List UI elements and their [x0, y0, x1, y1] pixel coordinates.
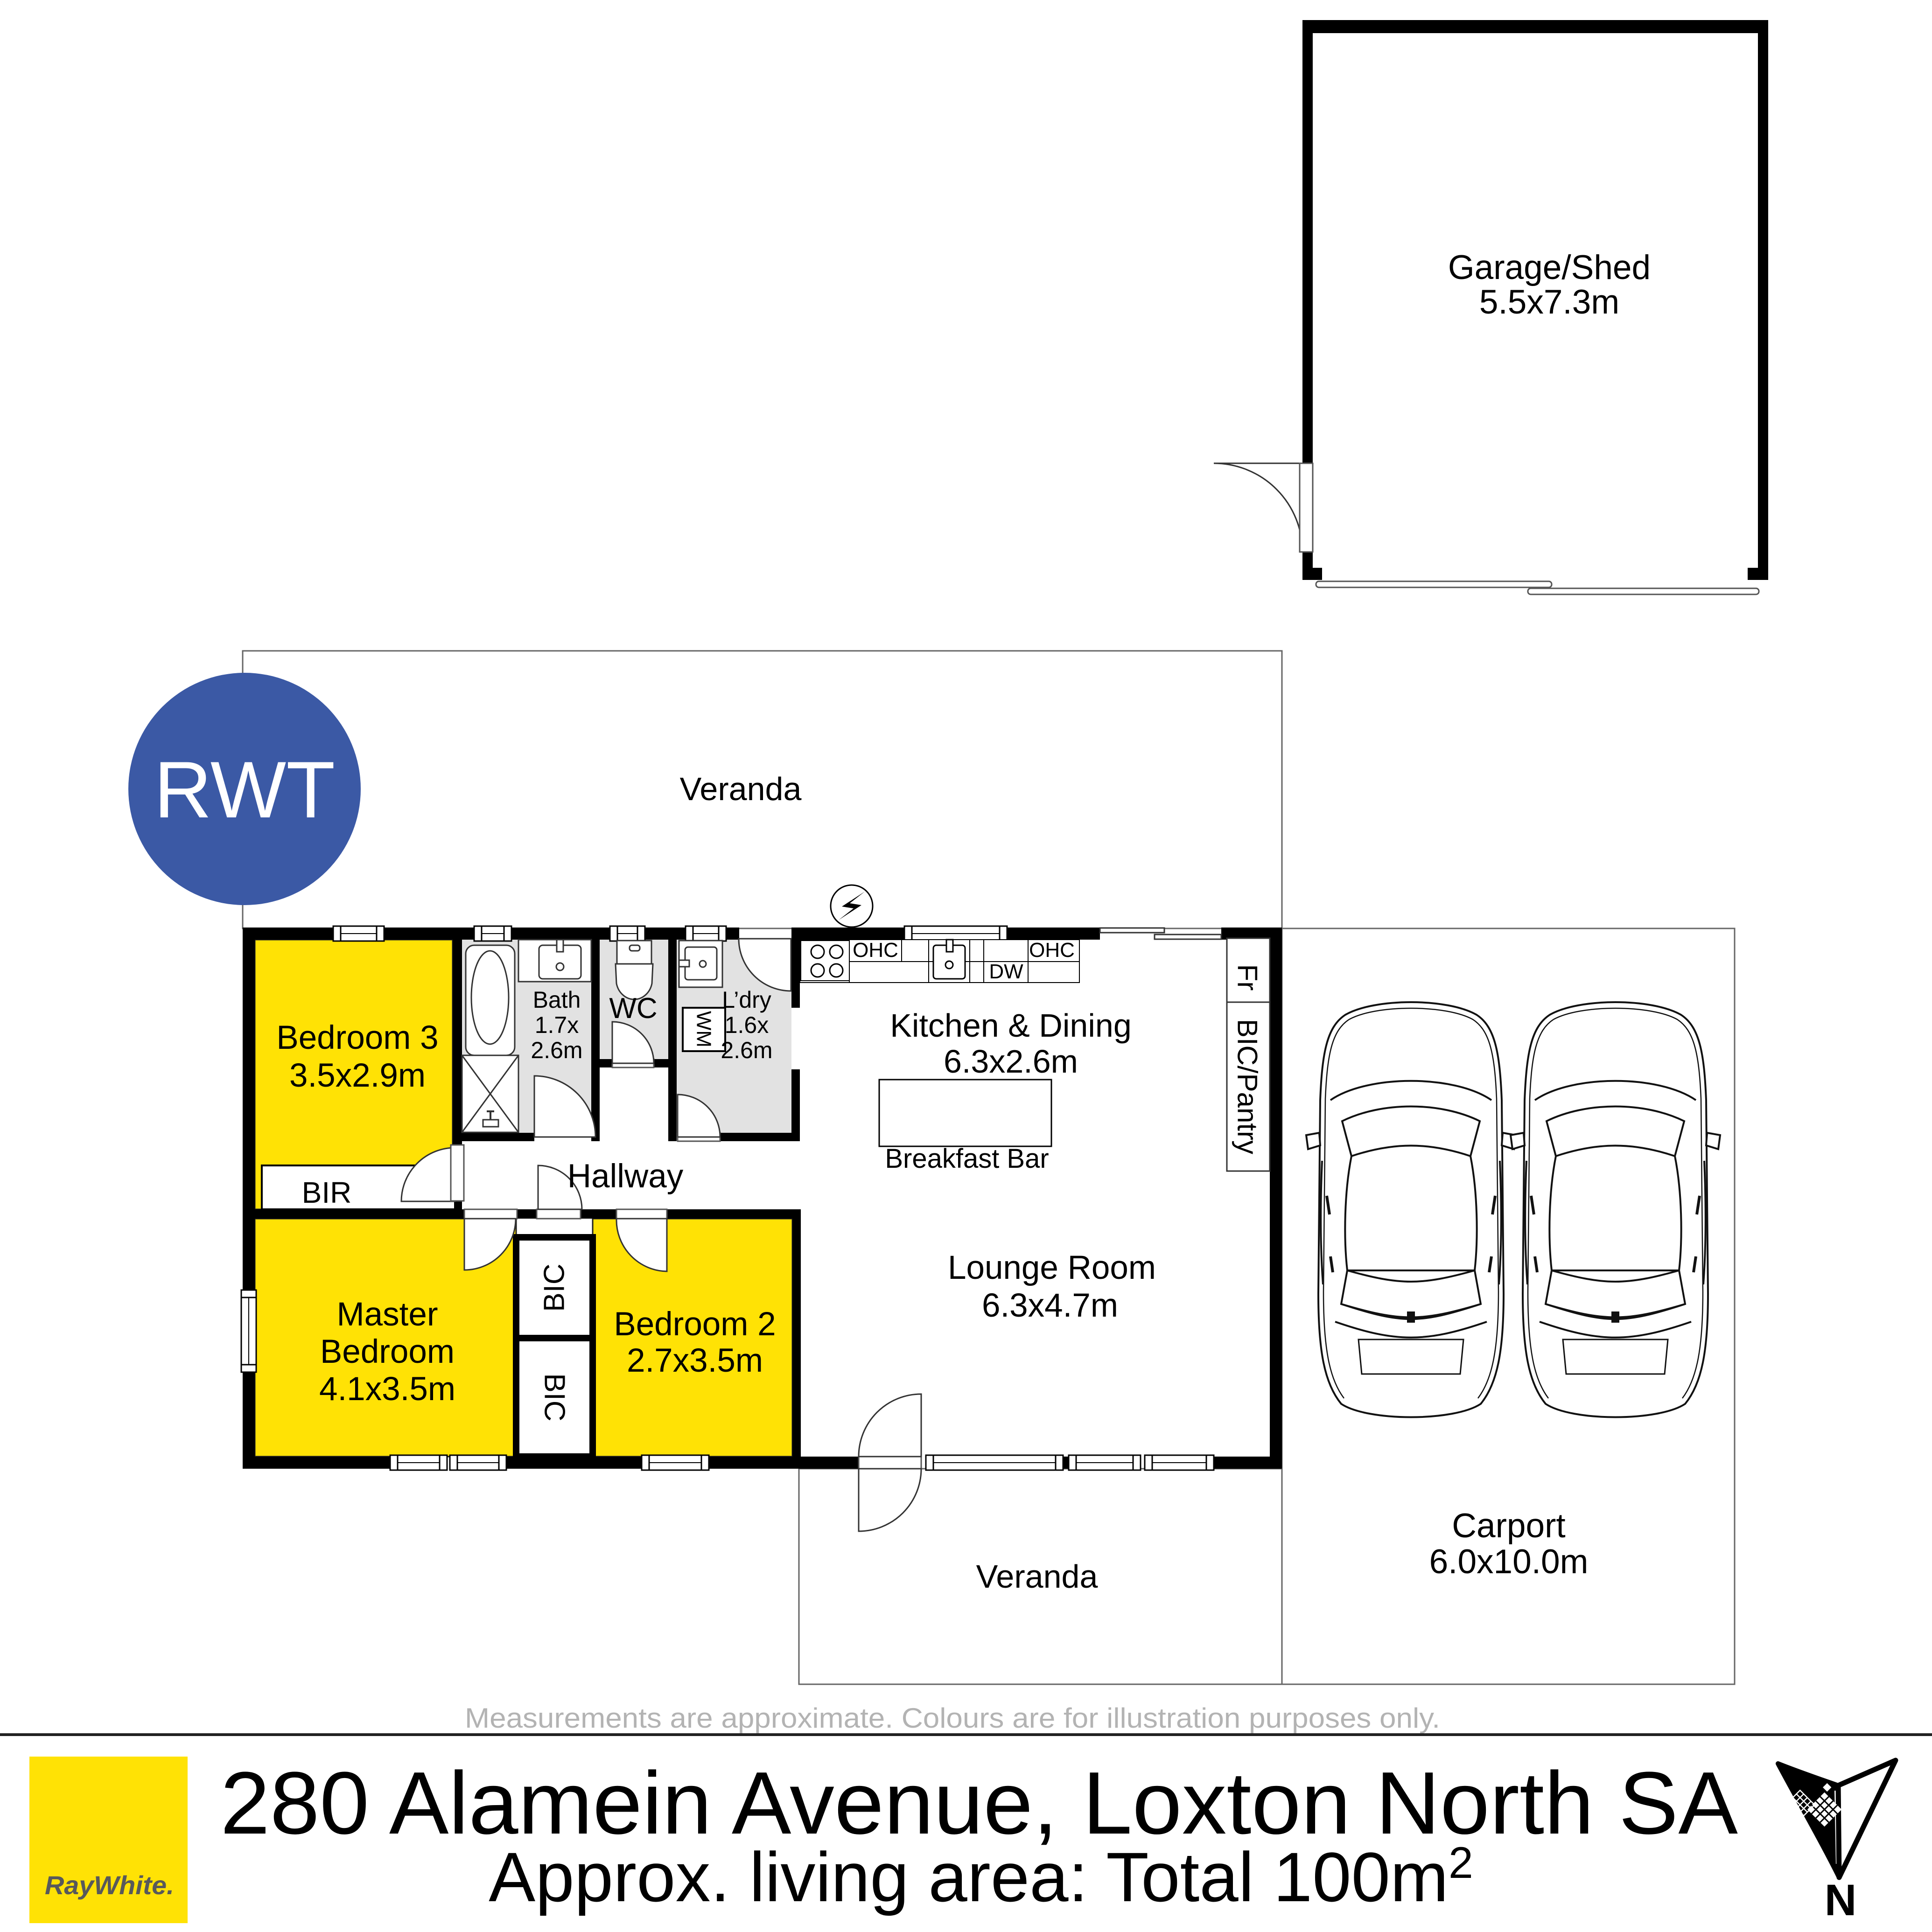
svg-text:Kitchen & Dining: Kitchen & Dining: [890, 1007, 1132, 1044]
svg-text:Breakfast Bar: Breakfast Bar: [885, 1144, 1049, 1174]
svg-text:2.6m: 2.6m: [721, 1037, 772, 1063]
svg-text:Lounge Room: Lounge Room: [948, 1249, 1156, 1286]
svg-text:6.3x2.6m: 6.3x2.6m: [944, 1043, 1078, 1080]
svg-text:5.5x7.3m: 5.5x7.3m: [1479, 283, 1619, 321]
svg-text:Garage/Shed: Garage/Shed: [1448, 249, 1651, 286]
svg-text:WC: WC: [609, 992, 657, 1025]
svg-text:2.6m: 2.6m: [531, 1037, 582, 1063]
svg-text:1.6x: 1.6x: [725, 1012, 769, 1038]
svg-text:Fr: Fr: [1232, 964, 1263, 991]
svg-text:Bedroom 2: Bedroom 2: [614, 1306, 776, 1343]
svg-text:Approx. living area: Total 100: Approx. living area: Total 100m2: [489, 1838, 1473, 1916]
svg-text:BIC/Pantry: BIC/Pantry: [1232, 1019, 1263, 1154]
svg-text:N: N: [1825, 1876, 1857, 1925]
svg-text:DW: DW: [989, 960, 1023, 983]
svg-text:Veranda: Veranda: [976, 1558, 1098, 1595]
svg-text:Bedroom 3: Bedroom 3: [276, 1019, 438, 1056]
svg-text:Bath: Bath: [533, 987, 581, 1013]
svg-text:6.0x10.0m: 6.0x10.0m: [1429, 1543, 1589, 1581]
svg-text:L’dry: L’dry: [722, 987, 771, 1013]
svg-text:Hallway: Hallway: [567, 1158, 684, 1195]
svg-text:Veranda: Veranda: [680, 771, 802, 807]
svg-text:Master: Master: [337, 1296, 438, 1333]
svg-text:3.5x2.9m: 3.5x2.9m: [289, 1057, 426, 1094]
svg-text:Measurements are approximate.: Measurements are approximate. Colours ar…: [465, 1702, 1440, 1734]
svg-text:OHC: OHC: [1029, 939, 1075, 962]
svg-text:Bedroom: Bedroom: [320, 1333, 455, 1370]
svg-text:BIR: BIR: [302, 1176, 352, 1209]
svg-text:4.1x3.5m: 4.1x3.5m: [319, 1371, 455, 1408]
svg-text:RWT: RWT: [154, 745, 336, 835]
svg-text:6.3x4.7m: 6.3x4.7m: [982, 1287, 1118, 1324]
svg-text:1.7x: 1.7x: [535, 1012, 579, 1038]
svg-text:2.7x3.5m: 2.7x3.5m: [627, 1342, 763, 1379]
svg-text:Carport: Carport: [1452, 1507, 1565, 1545]
svg-text:BIC: BIC: [539, 1373, 571, 1421]
svg-text:RayWhite.: RayWhite.: [45, 1870, 174, 1900]
svg-text:OHC: OHC: [853, 939, 898, 962]
svg-text:BIC: BIC: [539, 1263, 571, 1311]
svg-text:WM: WM: [693, 1011, 715, 1047]
